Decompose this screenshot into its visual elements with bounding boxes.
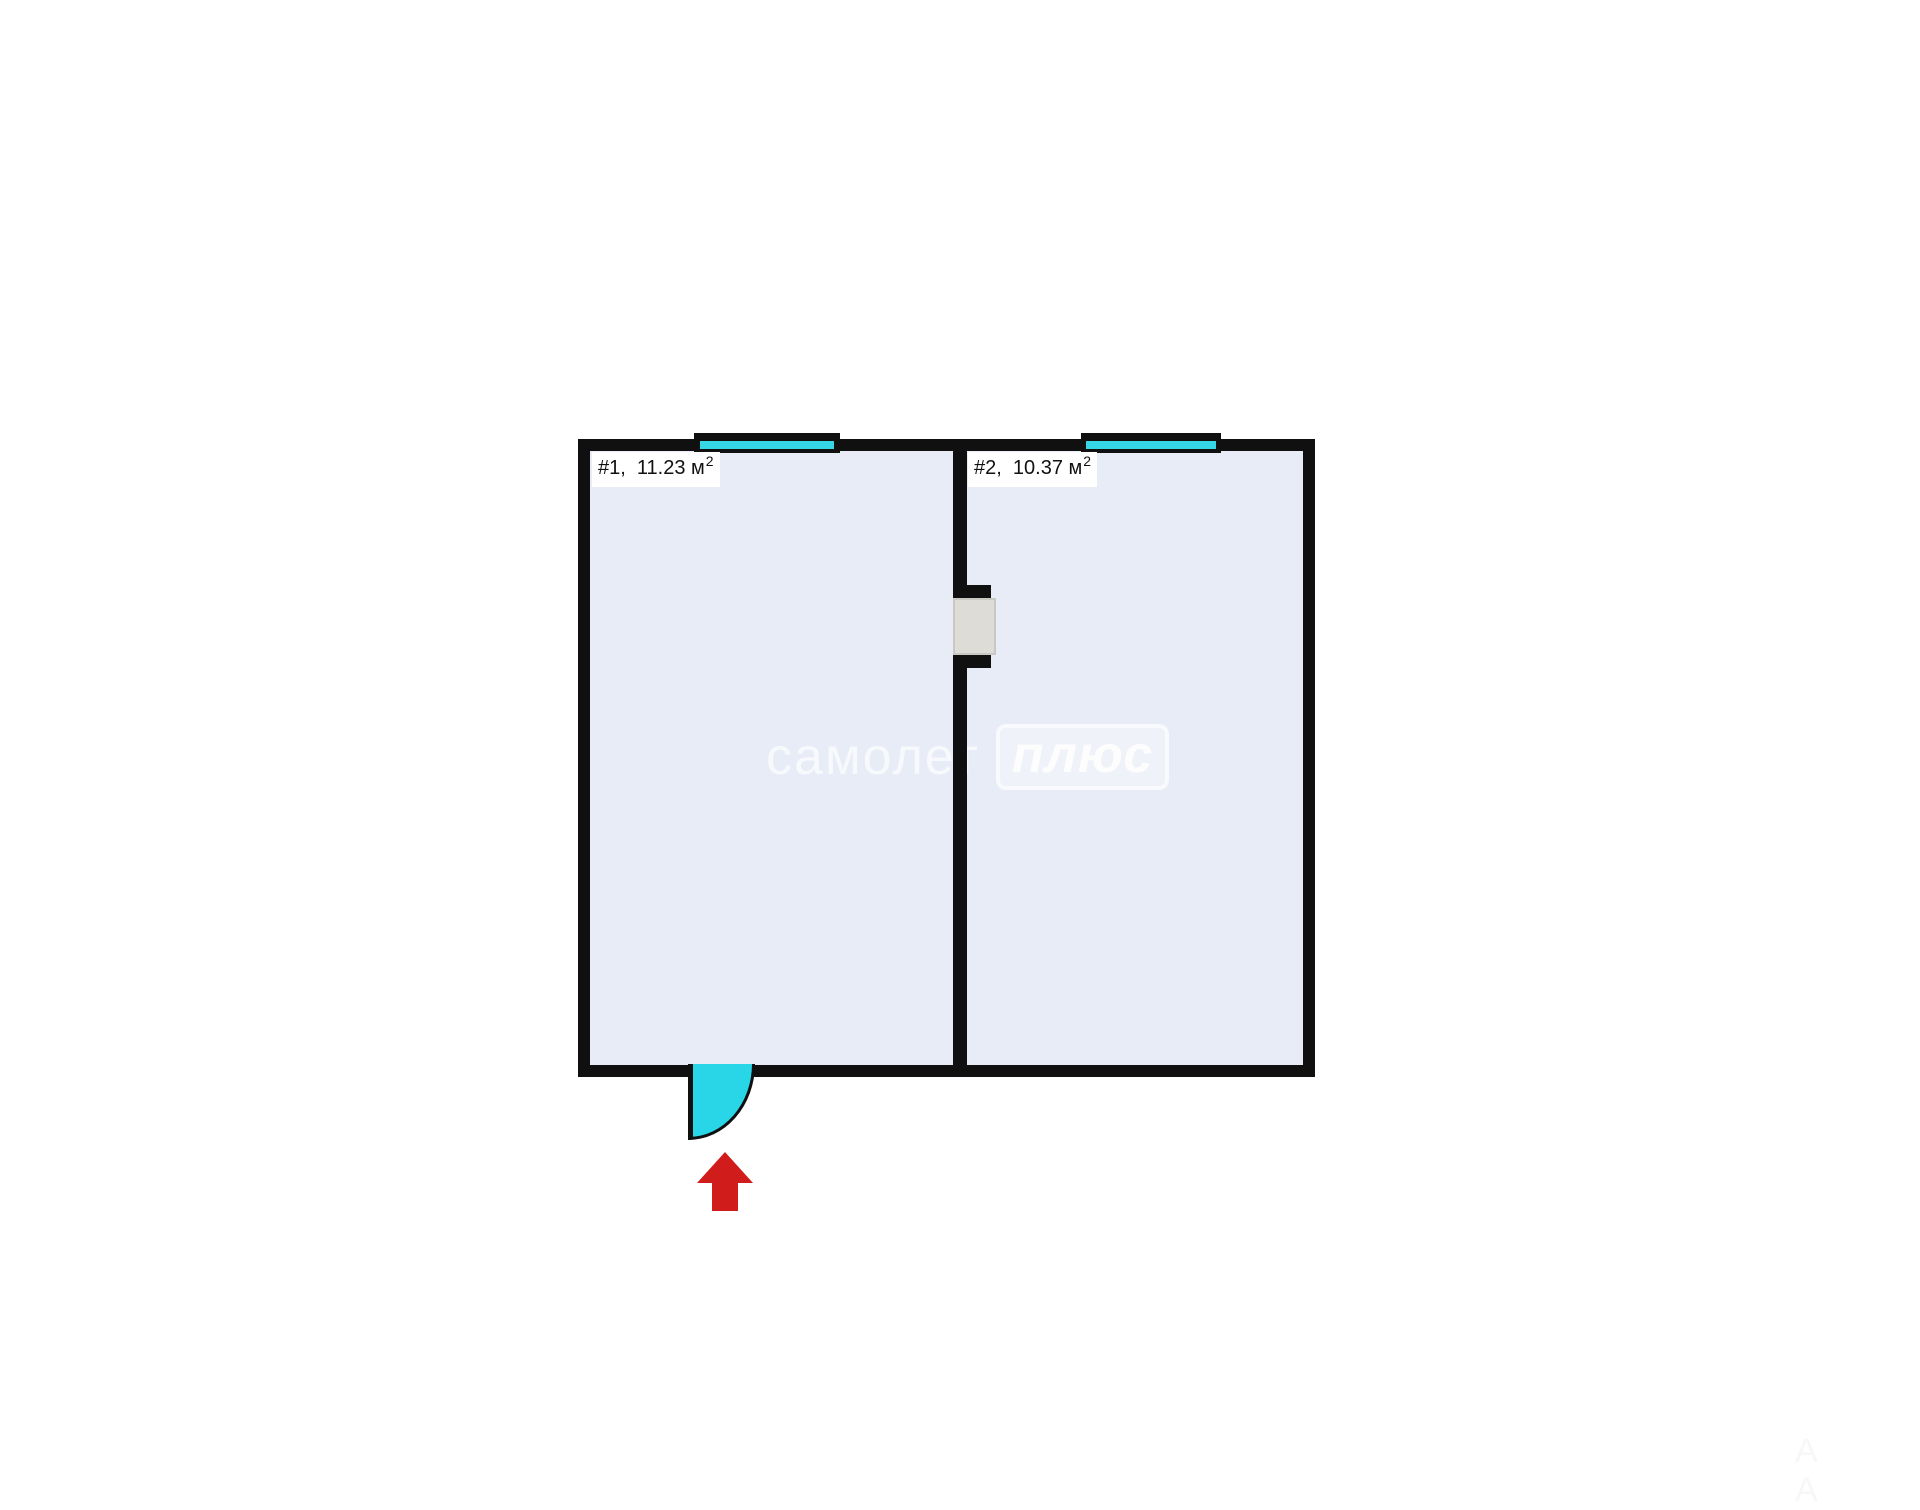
room-label-text: #2, 10.37 м [974,457,1082,479]
door-swing-icon [688,1064,755,1140]
doorway-jamb-bottom [953,655,991,668]
partition-wall [953,451,967,1065]
window-icon-room-2 [1081,433,1221,453]
floor-plan: самолет плюс #1, 11.23 м2 #2, 10.37 м2 [578,439,1315,1077]
entrance-arrow-icon [697,1152,753,1183]
watermark-artifact: A A [1795,1432,1920,1510]
room-label-superscript: 2 [706,453,714,469]
floor-plan-canvas: { "watermark": { "brand": "самолет", "ba… [0,0,1920,1500]
doorway-panel [953,598,996,655]
room-label-text: #1, 11.23 м [598,457,705,479]
watermark-brand: самолет [766,731,980,783]
room-label-superscript: 2 [1083,453,1091,469]
room-label-2: #2, 10.37 м2 [968,452,1097,487]
entrance-arrow-shaft [712,1183,738,1211]
window-icon-room-1 [694,433,840,453]
room-label-1: #1, 11.23 м2 [592,452,720,487]
window-glass [700,441,834,449]
watermark-badge: плюс [996,724,1169,790]
doorway-jamb-top [953,585,991,598]
watermark: самолет плюс [766,724,1169,790]
window-glass [1086,441,1216,449]
